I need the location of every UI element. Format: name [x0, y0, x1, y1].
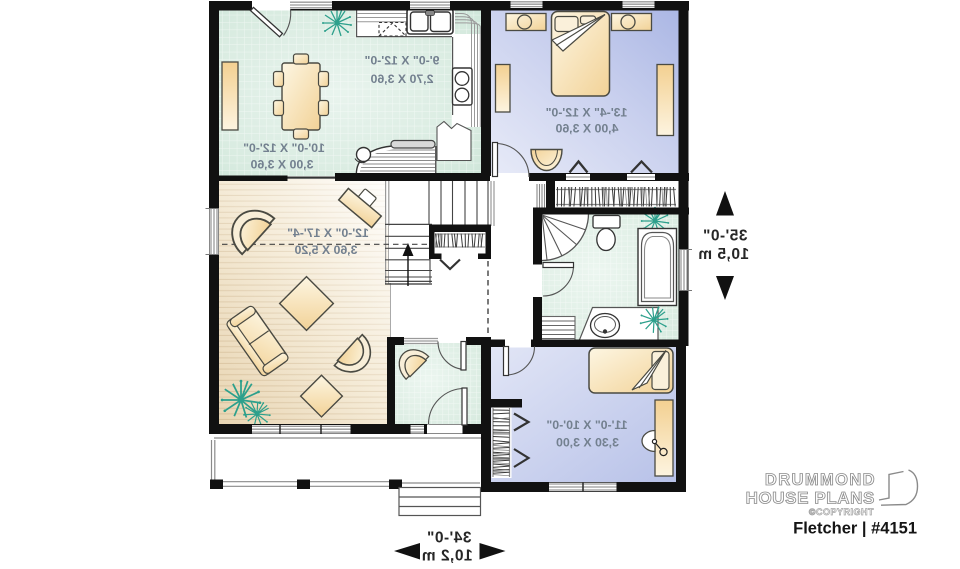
svg-text:11'-0" X 10'-0": 11'-0" X 10'-0" — [546, 418, 627, 432]
svg-text:DRUMMOND: DRUMMOND — [765, 471, 876, 489]
svg-text:35'-0": 35'-0" — [702, 228, 747, 245]
svg-text:13'-4" X 12'-0": 13'-4" X 12'-0" — [545, 106, 627, 120]
svg-text:10,5 m: 10,5 m — [698, 246, 749, 263]
svg-text:3,00 X 3,60: 3,00 X 3,60 — [250, 158, 313, 172]
svg-text:4,00 X 3,60: 4,00 X 3,60 — [555, 122, 618, 136]
svg-text:3,60 X 5,20: 3,60 X 5,20 — [294, 243, 357, 257]
svg-text:HOUSE PLANS: HOUSE PLANS — [746, 489, 875, 508]
svg-text:9'-0" X 12'-0": 9'-0" X 12'-0" — [364, 54, 439, 68]
svg-text:12'-0" X 17'-4": 12'-0" X 17'-4" — [287, 226, 369, 240]
svg-text:2,70 X 3,60: 2,70 X 3,60 — [370, 72, 433, 86]
svg-text:10,2 m: 10,2 m — [421, 548, 472, 565]
svg-text:©COPYRIGHT: ©COPYRIGHT — [809, 507, 874, 517]
svg-text:10'-0" X 12'-0": 10'-0" X 12'-0" — [243, 141, 325, 155]
svg-text:Fletcher | #4151: Fletcher | #4151 — [793, 520, 917, 538]
svg-text:3,30 X 3,00: 3,30 X 3,00 — [556, 436, 619, 450]
svg-text:34'-0": 34'-0" — [426, 530, 471, 547]
